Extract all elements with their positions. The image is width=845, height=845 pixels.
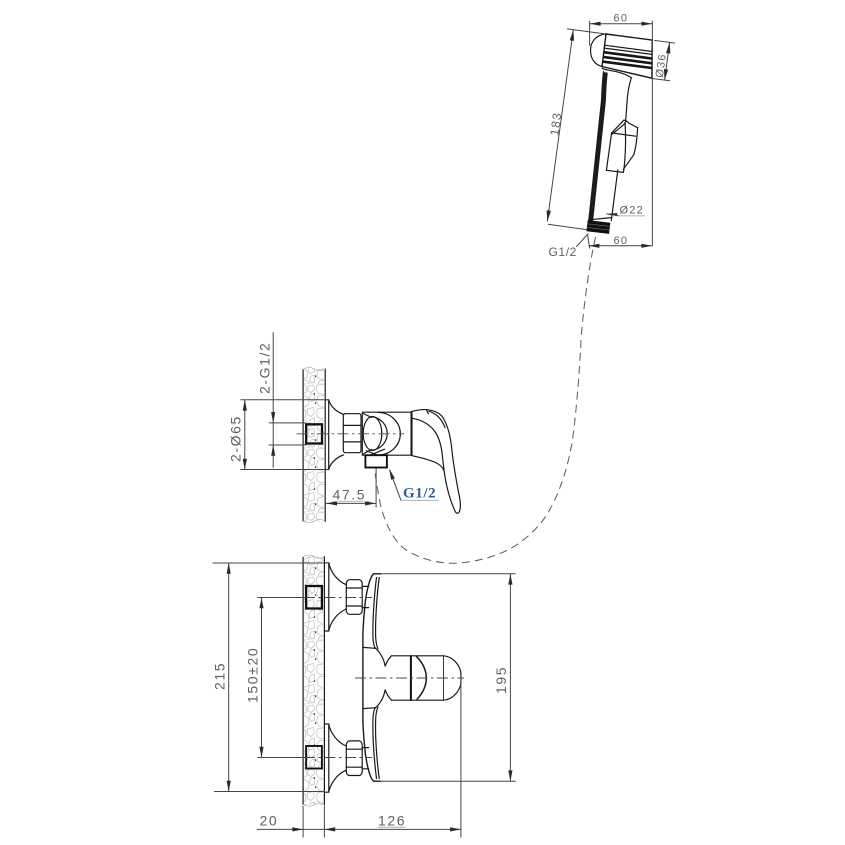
svg-text:126: 126 xyxy=(378,813,406,829)
svg-text:G1/2: G1/2 xyxy=(403,486,436,502)
svg-text:60: 60 xyxy=(614,13,629,25)
svg-text:G1/2: G1/2 xyxy=(549,245,577,259)
svg-text:183: 183 xyxy=(547,111,564,136)
svg-text:20: 20 xyxy=(260,813,279,829)
svg-text:150±20: 150±20 xyxy=(245,647,261,703)
svg-text:195: 195 xyxy=(493,666,509,694)
svg-text:60: 60 xyxy=(614,235,629,247)
svg-text:Ø22: Ø22 xyxy=(620,205,644,217)
svg-text:215: 215 xyxy=(212,662,228,690)
svg-text:2-Ø65: 2-Ø65 xyxy=(228,415,244,462)
svg-text:47.5: 47.5 xyxy=(333,487,367,503)
svg-text:2-G1/2: 2-G1/2 xyxy=(257,342,273,394)
svg-text:Ø36: Ø36 xyxy=(654,53,669,79)
